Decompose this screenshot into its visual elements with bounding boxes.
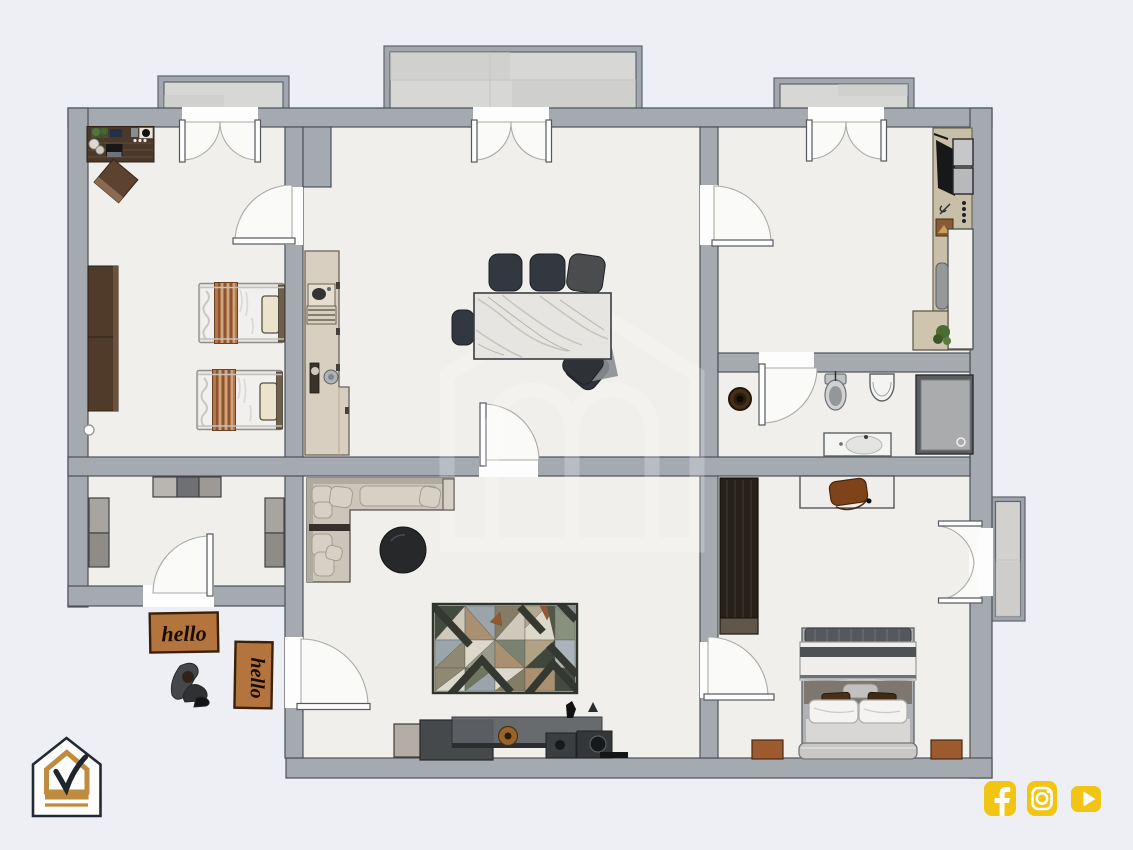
svg-text:hello: hello: [161, 621, 207, 647]
svg-text:hello: hello: [246, 657, 269, 699]
